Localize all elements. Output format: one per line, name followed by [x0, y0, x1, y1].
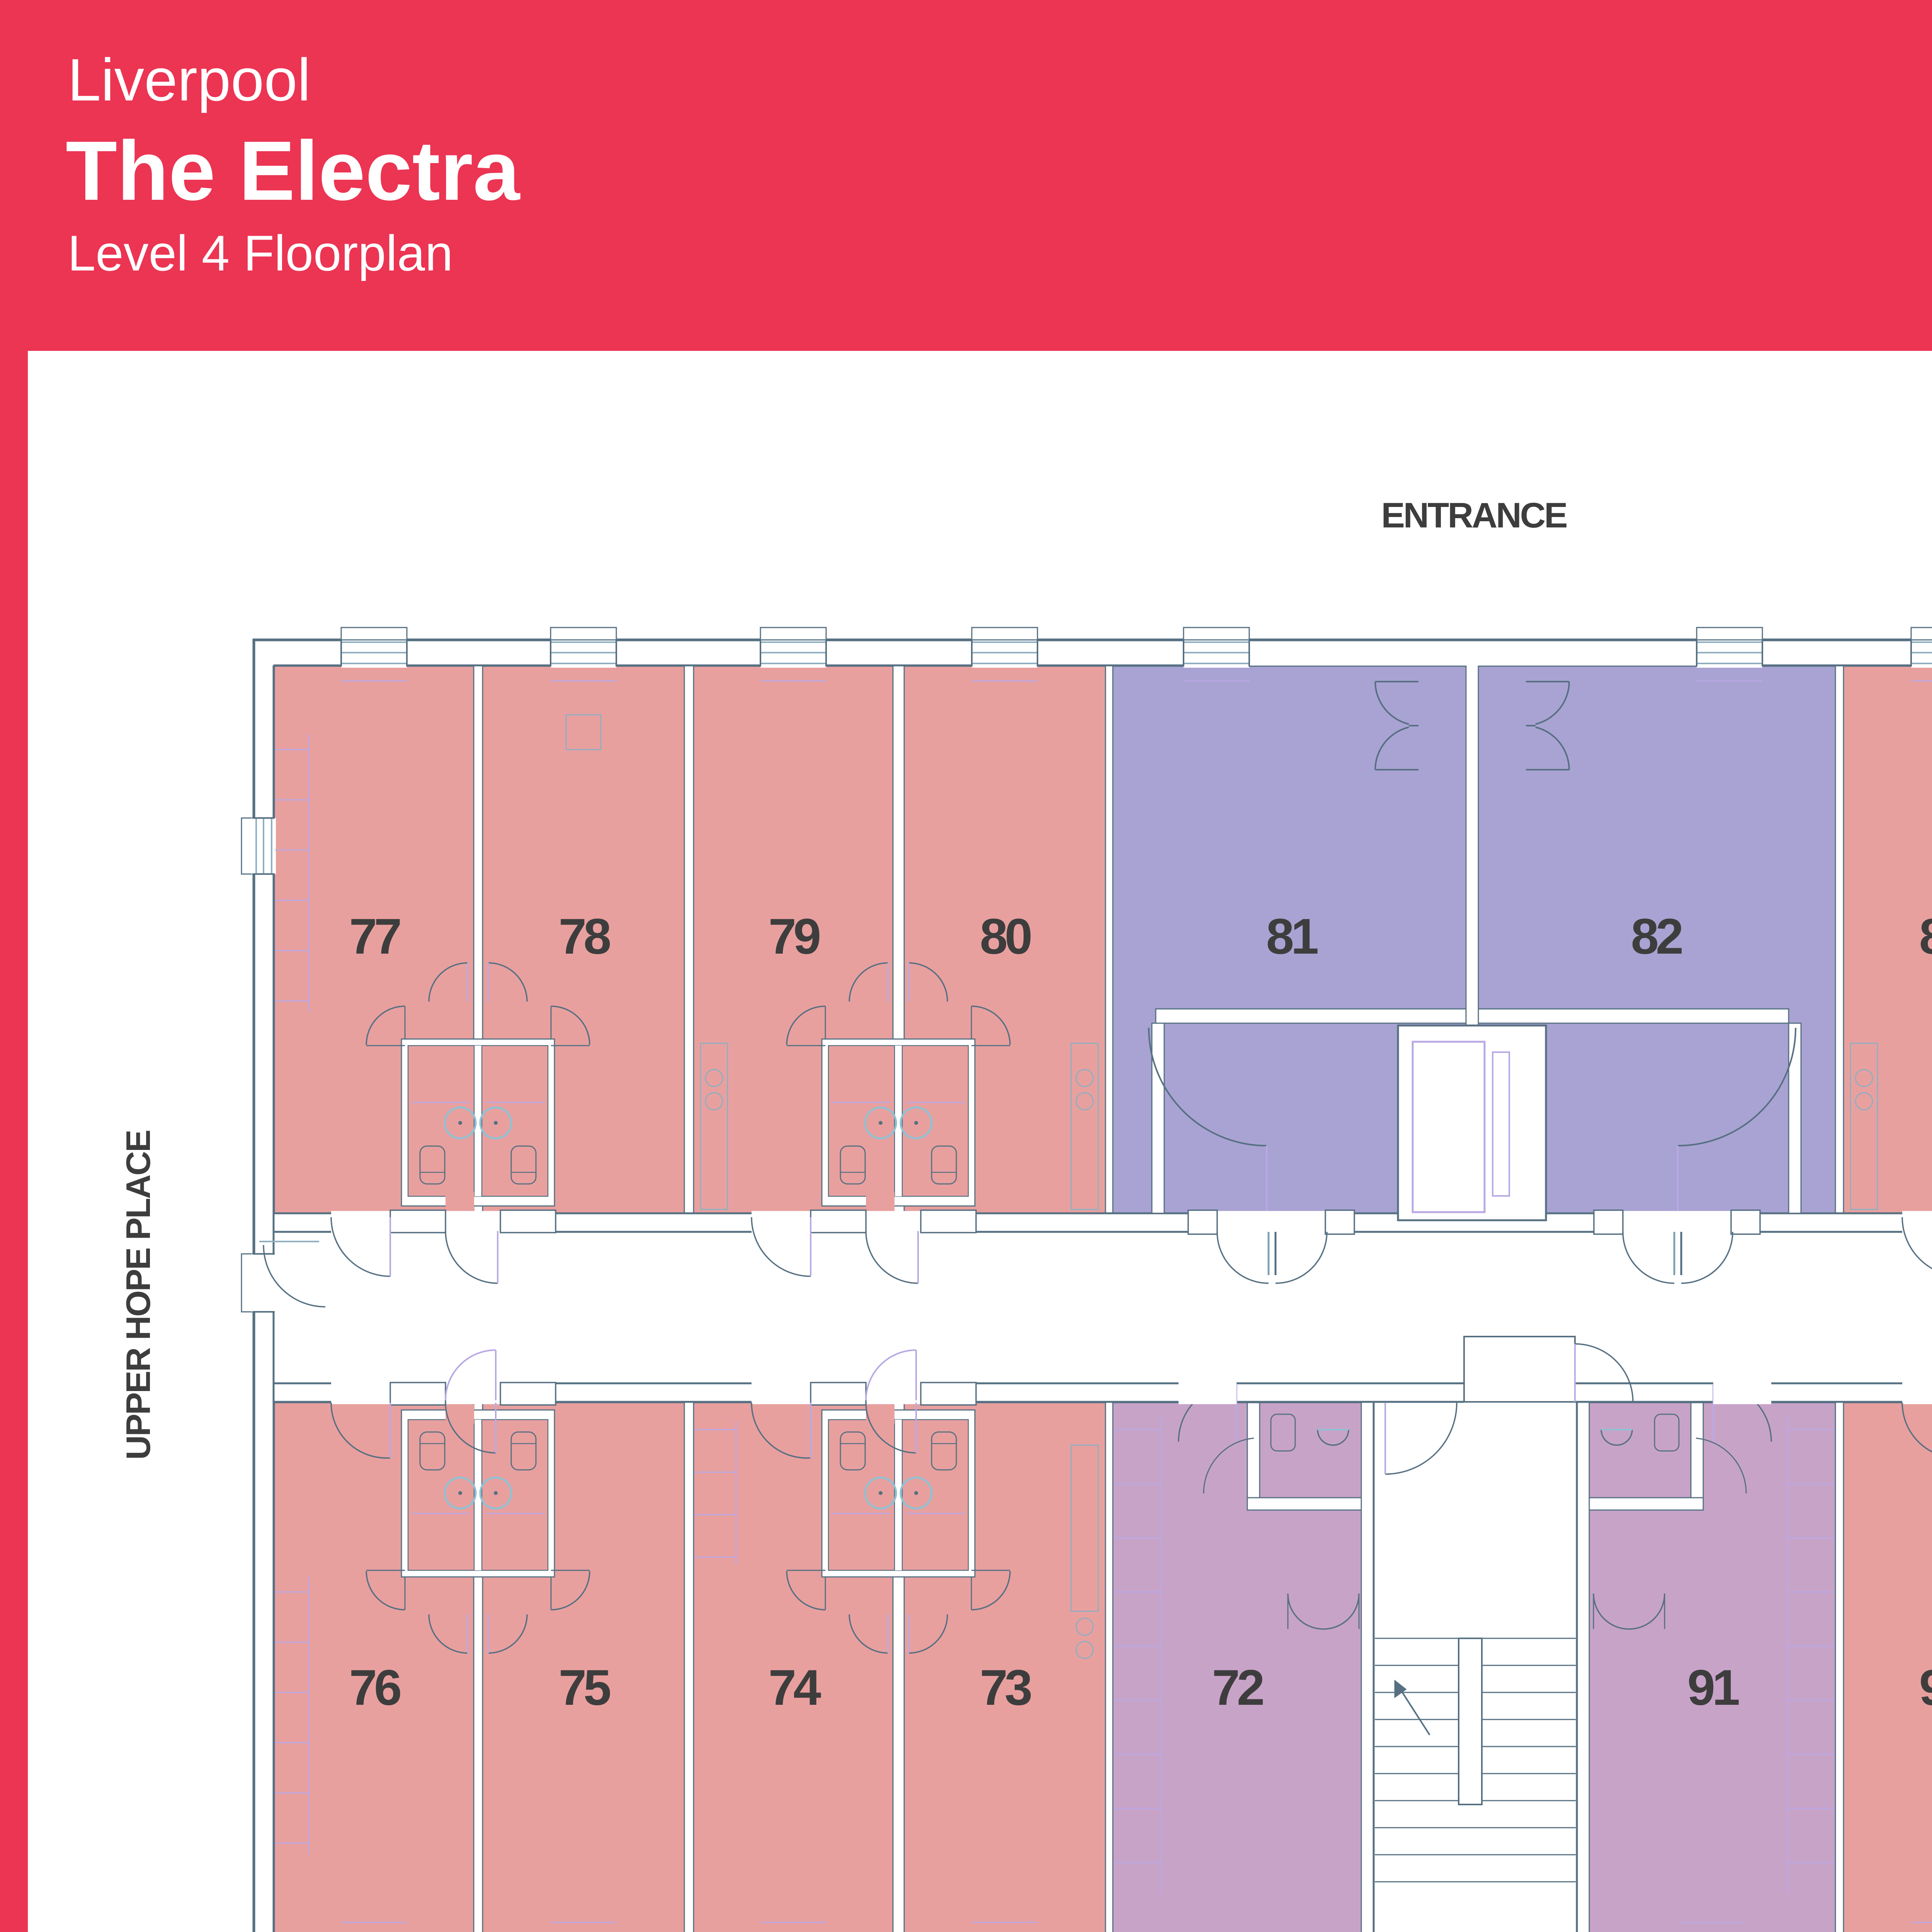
svg-text:82: 82	[1631, 908, 1682, 964]
svg-text:75: 75	[559, 1659, 610, 1716]
svg-text:80: 80	[980, 908, 1031, 964]
svg-text:73: 73	[980, 1659, 1031, 1716]
svg-text:72: 72	[1212, 1659, 1263, 1716]
svg-text:81: 81	[1266, 908, 1318, 964]
svg-text:91: 91	[1687, 1659, 1739, 1716]
svg-text:77: 77	[349, 908, 400, 964]
svg-text:74: 74	[769, 1659, 821, 1716]
svg-text:ENTRANCE: ENTRANCE	[1381, 496, 1566, 535]
svg-text:79: 79	[769, 908, 820, 964]
svg-text:UPPER HOPE PLACE: UPPER HOPE PLACE	[119, 1131, 157, 1460]
svg-text:83: 83	[1919, 908, 1932, 964]
svg-text:90: 90	[1919, 1659, 1932, 1716]
svg-text:76: 76	[349, 1659, 400, 1716]
svg-text:78: 78	[559, 908, 610, 964]
